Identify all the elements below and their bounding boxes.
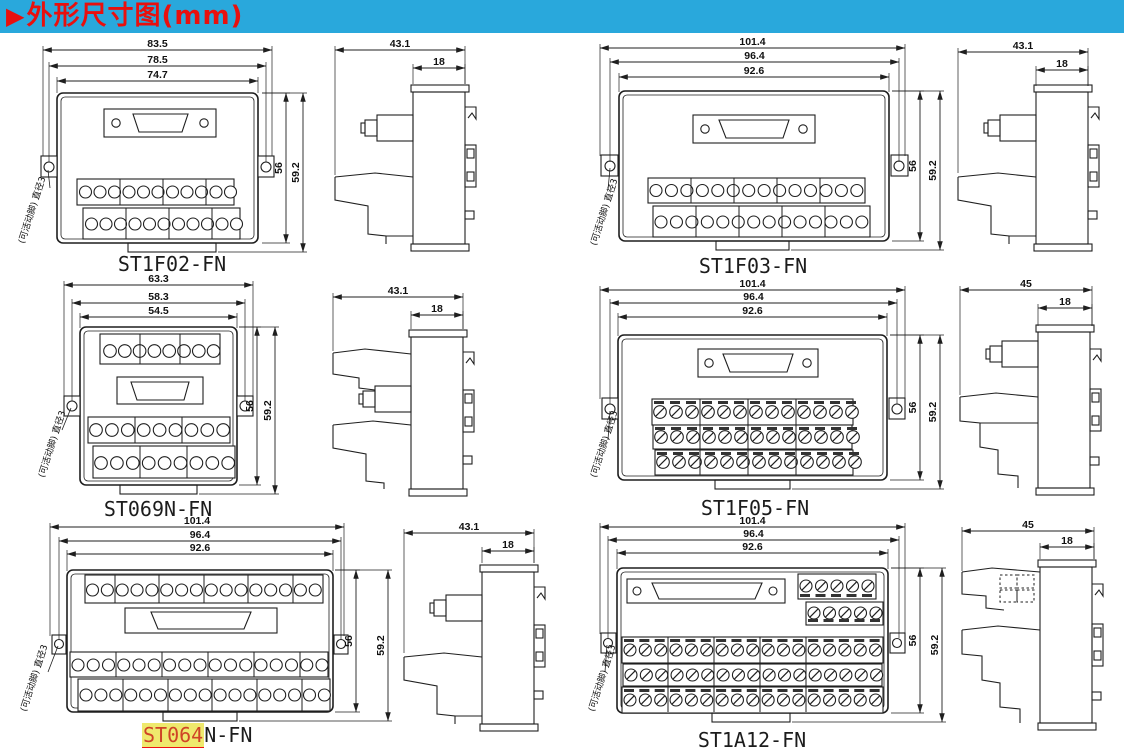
st069n-fn-side-view [333,330,474,496]
dimension-value: 83.5 [147,38,168,50]
st1f02-fn-side-view [335,85,476,251]
dimension-value: 18 [1059,296,1071,308]
dimension-drawings-canvas: 83.578.574.75659.243.118(可活动脚) 直径3101.49… [0,0,1124,748]
st1f03-fn-drawing: 101.496.492.65659.243.118(可活动脚) 直径3 [587,36,1099,251]
module-label-st1f03-fn: ST1F03-FN [699,254,807,278]
st069n-fn-front-view [64,327,253,494]
dimension-value: 59.2 [927,402,939,423]
dimension-value: 92.6 [742,541,763,553]
dimension-value: 18 [502,539,514,551]
st1f05-fn-side-view [960,325,1101,495]
st1f03-fn-front-view [601,91,908,250]
dimension-value: 92.6 [742,305,763,317]
dimension-value: 96.4 [744,50,765,62]
dimension-value: 56 [273,162,285,174]
mounting-foot-note: (可活动脚) 直径3 [17,643,50,713]
dimension-value: 18 [1061,535,1073,547]
dimension-value: 59.2 [927,160,939,181]
st1f03-fn-side-view [958,85,1099,251]
module-label-st1f02-fn: ST1F02-FN [118,252,226,276]
dimension-value: 59.2 [375,635,387,656]
page: ▶ 外形尺寸图(mm) 83.578.574.75659.243.118(可活动… [0,0,1124,748]
dimension-value: 92.6 [190,542,211,554]
dimension-value: 43.1 [1013,40,1034,52]
module-label-st1a12-fn: ST1A12-FN [698,728,806,748]
dimension-value: 56 [244,400,256,412]
dimension-value: 78.5 [147,54,168,66]
dimension-value: 56 [907,160,919,172]
dimension-value: 96.4 [743,528,764,540]
st1f02-fn-front-view [41,93,274,252]
st1f05-fn-drawing: 101.496.492.65659.24518(可活动脚) 直径3 [587,278,1101,495]
st1a12-fn-front-view [601,568,905,722]
st064n-fn-side-view [404,565,545,731]
st069n-fn-drawing: 63.358.354.55659.243.118(可活动脚) 直径3 [35,273,474,496]
dimension-value: 18 [1056,58,1068,70]
dimension-value: 101.4 [739,36,765,48]
dimension-value: 74.7 [147,69,168,81]
dimension-value: 43.1 [390,38,411,50]
st1f02-fn-drawing: 83.578.574.75659.243.118(可活动脚) 直径3 [15,38,476,252]
dimension-value: 59.2 [290,162,302,183]
dimension-value: 43.1 [388,285,409,297]
dimension-value: 56 [907,402,919,414]
dimension-value: 56 [343,635,355,647]
module-label-st1f05-fn: ST1F05-FN [701,496,809,520]
module-label-st069n-fn: ST069N-FN [104,497,212,521]
dimension-value: 18 [433,56,445,68]
dimension-value: 43.1 [459,521,480,533]
st064n-fn-drawing: 101.496.492.65659.243.118(可活动脚) 直径3 [17,515,545,731]
st1a12-fn-drawing: 101.496.492.65659.24518(可活动脚) 直径3 [585,515,1103,730]
dimension-value: 101.4 [739,278,765,290]
dimension-value: 54.5 [148,305,169,317]
st1a12-fn-side-view [962,560,1103,730]
st1f05-fn-front-view [602,335,905,489]
module-label-st064n-fn: ST064N-FN [142,723,252,747]
dimension-value: 92.6 [744,65,765,77]
dimension-value: 56 [907,635,919,647]
dimension-value: 59.2 [262,400,274,421]
mounting-foot-note: (可活动脚) 直径3 [35,409,68,479]
dimension-value: 58.3 [148,291,169,303]
dimension-value: 96.4 [190,529,211,541]
dimension-value: 96.4 [743,291,764,303]
dimension-value: 18 [431,303,443,315]
st064n-fn-front-view [52,570,348,721]
mounting-foot-note: (可活动脚) 直径3 [587,177,620,247]
dimension-value: 45 [1020,278,1032,290]
module-label-rest: N-FN [204,723,252,747]
mounting-foot-note: (可活动脚) 直径3 [15,175,48,245]
dimension-value: 45 [1022,519,1034,531]
module-label-highlight: ST064 [142,723,204,748]
dimension-value: 59.2 [929,635,941,656]
